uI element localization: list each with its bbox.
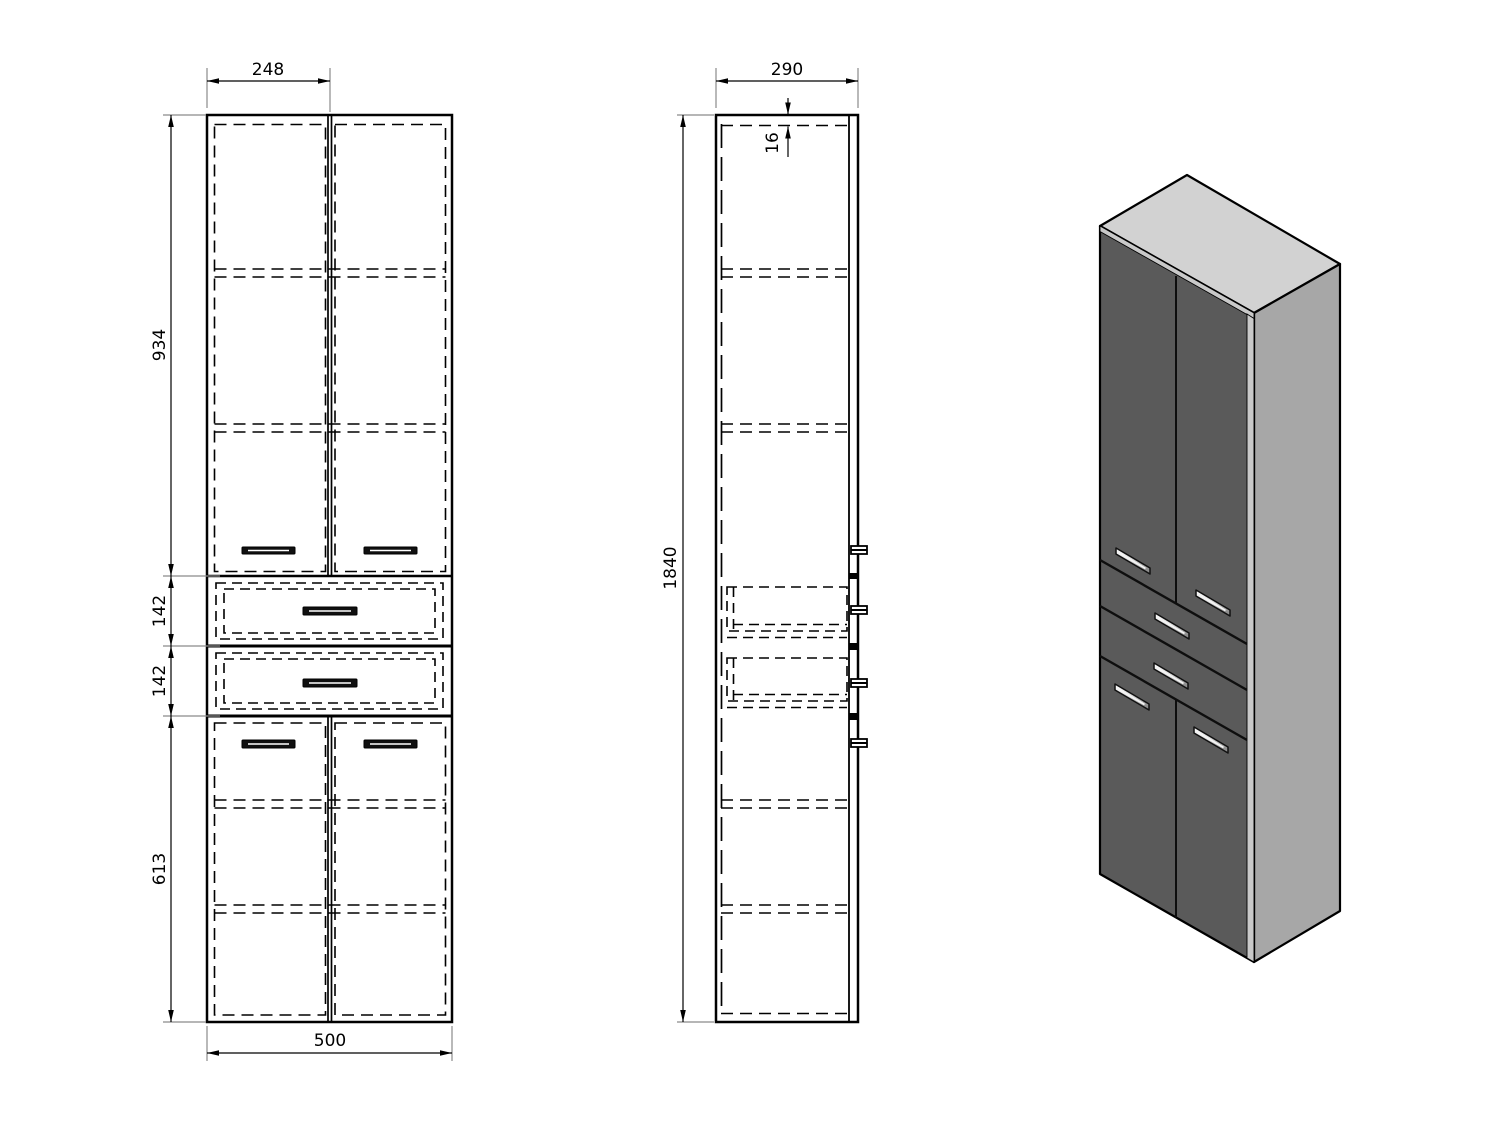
side-lower-door-handle	[851, 739, 867, 747]
front-lower-left-door-handle	[242, 740, 295, 748]
front-view	[207, 115, 452, 1022]
side-shelf-lines	[721, 269, 848, 913]
front-section-boundaries	[207, 576, 452, 716]
side-drawer-bottom-box	[727, 658, 847, 708]
front-upper-right-door-handle	[364, 547, 417, 554]
iso-side-face	[1254, 264, 1340, 962]
front-door-gap	[328, 115, 332, 1022]
dim-label-front-upper-door-height: 934	[150, 329, 170, 361]
front-lower-right-door-handle	[364, 740, 417, 748]
dim-label-front-drawer-top-height: 142	[150, 595, 170, 627]
side-front-gap-marks	[850, 573, 859, 720]
front-dimensions: 248 934 142 142 613 500	[150, 60, 452, 1061]
front-shelf-lines	[215, 269, 446, 913]
side-hidden-panel-lines	[721, 124, 848, 1014]
side-cabinet-outline	[716, 115, 858, 1022]
side-drawer-top-handle	[851, 606, 867, 614]
side-drawer-bottom-handle	[851, 679, 867, 687]
dim-label-side-depth: 290	[771, 60, 803, 80]
side-view	[716, 115, 867, 1022]
dim-label-front-total-width: 500	[314, 1031, 346, 1051]
front-upper-left-door-handle	[242, 547, 295, 554]
side-dimensions: 290 16 1840	[661, 60, 858, 1022]
front-cabinet-outline	[207, 115, 452, 1022]
dim-label-front-half-width: 248	[252, 60, 284, 80]
front-hidden-carcass-lines	[215, 125, 446, 1016]
front-drawer-bottom-handle	[303, 679, 357, 687]
iso-right-edge-strip	[1247, 314, 1254, 962]
dim-label-side-total-height: 1840	[661, 546, 681, 589]
front-drawer-top-handle	[303, 607, 357, 615]
drawing-page: 248 934 142 142 613 500	[0, 0, 1500, 1122]
dim-label-front-drawer-bottom-height: 142	[150, 665, 170, 697]
side-drawer-top-box	[727, 587, 847, 638]
side-upper-door-handle	[851, 546, 867, 554]
dim-label-side-top-panel-thickness: 16	[763, 132, 783, 154]
iso-view	[1100, 175, 1340, 962]
dim-label-front-lower-door-height: 613	[150, 853, 170, 885]
technical-drawing-canvas: 248 934 142 142 613 500	[0, 0, 1500, 1122]
